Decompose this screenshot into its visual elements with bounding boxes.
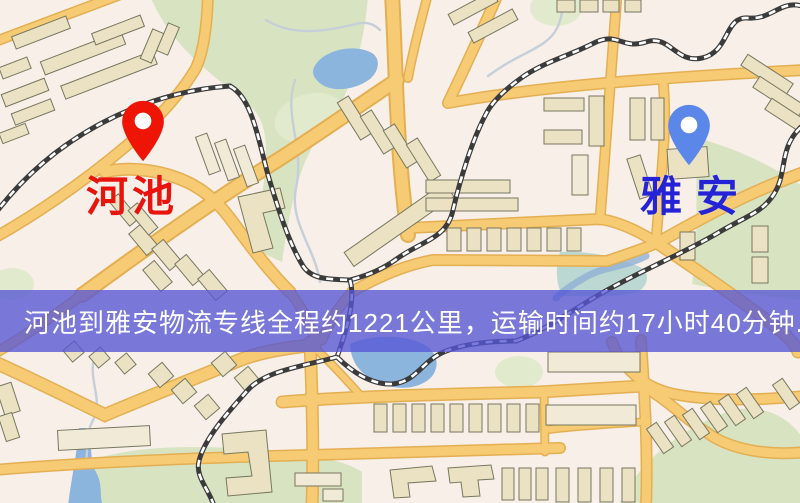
destination-pin-icon[interactable] [666, 103, 712, 167]
origin-city-label: 河池 [86, 176, 178, 218]
map-screenshot: 河池 雅安 河池到雅安物流专线全程约1221公里，运输时间约17小时40分钟. [0, 0, 800, 503]
destination-city-label: 雅安 [640, 176, 752, 218]
route-info-banner: 河池到雅安物流专线全程约1221公里，运输时间约17小时40分钟. [0, 290, 800, 352]
route-info-text: 河池到雅安物流专线全程约1221公里，运输时间约17小时40分钟. [0, 290, 800, 352]
map-canvas [0, 0, 800, 503]
origin-pin-icon[interactable] [120, 99, 166, 163]
